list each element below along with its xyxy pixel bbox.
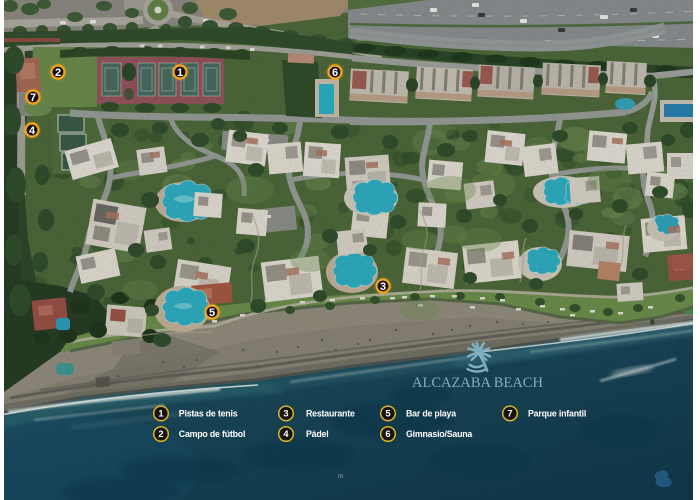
- svg-text:4: 4: [29, 125, 36, 137]
- svg-text:7: 7: [30, 92, 36, 104]
- svg-text:Gimnasio/Sauna: Gimnasio/Sauna: [406, 429, 472, 439]
- svg-text:4: 4: [283, 429, 289, 439]
- svg-text:2: 2: [55, 67, 61, 79]
- svg-text:ALCAZABA BEACH: ALCAZABA BEACH: [412, 375, 543, 391]
- svg-text:1: 1: [177, 67, 183, 79]
- svg-text:Pistas de tenis: Pistas de tenis: [179, 409, 238, 419]
- svg-text:3: 3: [380, 281, 386, 293]
- svg-text:1: 1: [158, 409, 163, 419]
- svg-text:m: m: [338, 474, 343, 480]
- svg-text:6: 6: [332, 67, 338, 79]
- svg-text:Bar de playa: Bar de playa: [406, 409, 456, 419]
- svg-text:Restaurante: Restaurante: [306, 409, 355, 419]
- svg-text:Pádel: Pádel: [306, 429, 328, 439]
- svg-text:5: 5: [209, 307, 215, 319]
- svg-text:Campo de fútbol: Campo de fútbol: [179, 429, 245, 439]
- svg-text:7: 7: [507, 409, 512, 419]
- svg-text:5: 5: [385, 409, 390, 419]
- svg-text:3: 3: [283, 409, 288, 419]
- svg-text:2: 2: [158, 429, 163, 439]
- svg-text:6: 6: [385, 429, 390, 439]
- svg-text:Parque infantil: Parque infantil: [528, 409, 586, 419]
